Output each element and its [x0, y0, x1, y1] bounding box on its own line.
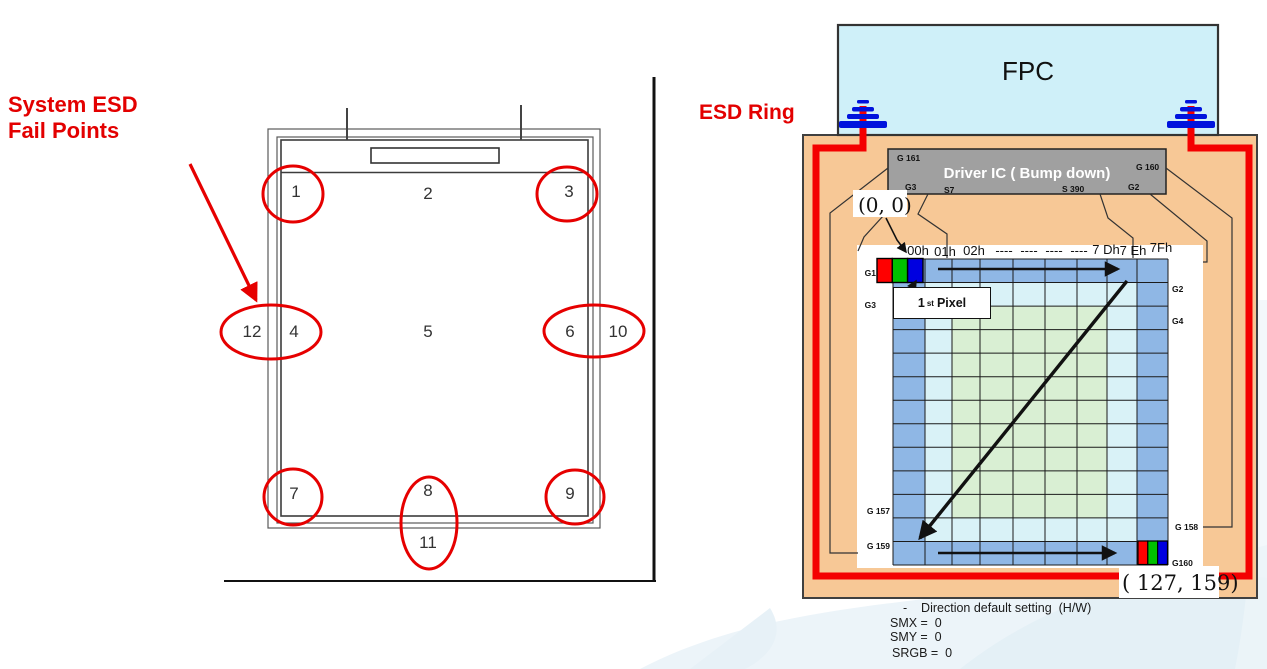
pixel-cell	[1077, 471, 1107, 495]
esd-ring-label: ESD Ring	[699, 101, 795, 125]
pixel-cell	[1045, 518, 1077, 542]
pixel-cell	[925, 471, 952, 495]
first-pixel-word: Pixel	[937, 296, 966, 310]
pixel-cell	[1013, 330, 1045, 354]
col-header-00h: 00h	[907, 243, 929, 258]
pixel-cell	[1045, 494, 1077, 518]
pixel-cell	[1107, 447, 1137, 471]
col-header-01h: 01h	[934, 244, 956, 259]
pixel-cell	[893, 424, 925, 448]
col-header-dash3: ----	[1045, 243, 1062, 258]
pixel-cell	[980, 518, 1013, 542]
pixel-cell	[1077, 353, 1107, 377]
pixel-cell	[1013, 494, 1045, 518]
row-label-g157: G 157	[867, 506, 890, 516]
pixel-cell	[925, 400, 952, 424]
pixel-cell	[1013, 447, 1045, 471]
pixel-cell	[1013, 283, 1045, 307]
first-pixel-number: 1	[918, 296, 925, 310]
pixel-cell	[1077, 377, 1107, 401]
fail-point-6: 6	[565, 322, 574, 341]
pixel-cell	[980, 400, 1013, 424]
pixel-cell	[952, 330, 980, 354]
pixel-cell	[1137, 283, 1168, 307]
pixel-cell	[980, 330, 1013, 354]
first-pixel-rgb	[877, 259, 923, 283]
pixel-cell	[1137, 259, 1168, 283]
pixel-cell	[1107, 400, 1137, 424]
pixel-cell	[952, 353, 980, 377]
first-pixel-red-subcell	[877, 259, 892, 283]
col-header-dash2: ----	[1020, 243, 1037, 258]
pixel-cell	[1045, 471, 1077, 495]
fail-point-10: 10	[609, 322, 628, 341]
pixel-cell	[1137, 494, 1168, 518]
pin-g2: G2	[1128, 182, 1140, 192]
pixel-cell	[1137, 306, 1168, 330]
pixel-cell	[1107, 306, 1137, 330]
row-label-g1: G1	[865, 268, 877, 278]
pixel-cell	[925, 518, 952, 542]
fail-point-1: 1	[291, 182, 300, 201]
right-figure: FPC Driver IC ( Bump down) G 161 G 160 G…	[803, 25, 1257, 598]
pixel-cell	[1077, 259, 1107, 283]
diagram-canvas: 1 2 3 12 4 5 6 10 7 8 9 11	[0, 0, 1267, 669]
pixel-cell	[1107, 377, 1137, 401]
pixel-cell	[893, 494, 925, 518]
first-pixel-blue-subcell	[908, 259, 923, 283]
pixel-cell	[1077, 400, 1107, 424]
fail-point-2: 2	[423, 184, 432, 203]
pixel-cell	[1107, 471, 1137, 495]
pixel-cell	[925, 377, 952, 401]
pixel-cell	[1013, 518, 1045, 542]
pixel-cell	[1077, 283, 1107, 307]
pixel-cell	[893, 353, 925, 377]
pixel-cell	[1107, 424, 1137, 448]
pixel-cell	[1137, 447, 1168, 471]
pixel-cell	[1013, 353, 1045, 377]
pixel-cell	[925, 353, 952, 377]
col-header-dash4: ----	[1070, 243, 1087, 258]
first-pixel-green-subcell	[892, 259, 907, 283]
pixel-cell	[1013, 471, 1045, 495]
pixel-cell	[1013, 259, 1045, 283]
pixel-cell	[893, 400, 925, 424]
note-direction-default: - Direction default setting (H/W)	[903, 601, 1091, 615]
pixel-cell	[1107, 259, 1137, 283]
pixel-cell	[1045, 400, 1077, 424]
pixel-cell	[1077, 494, 1107, 518]
row-label-g158: G 158	[1175, 522, 1198, 532]
pixel-cell	[1045, 306, 1077, 330]
pixel-cell	[980, 471, 1013, 495]
slide: 1 2 3 12 4 5 6 10 7 8 9 11	[0, 0, 1267, 669]
left-figure: 1 2 3 12 4 5 6 10 7 8 9 11	[190, 77, 656, 582]
fail-point-4: 4	[289, 322, 298, 341]
last-pixel-green-subcell	[1148, 541, 1158, 565]
pixel-cell	[1137, 330, 1168, 354]
panel-outline-outer	[268, 129, 600, 528]
pixel-cell	[952, 424, 980, 448]
col-header-7eh: 7 Eh	[1120, 243, 1147, 258]
fail-point-circles	[221, 166, 644, 569]
pixel-cell	[1045, 424, 1077, 448]
pixel-cell	[1137, 400, 1168, 424]
row-label-g2: G2	[1172, 284, 1184, 294]
pixel-cell	[1137, 377, 1168, 401]
pixel-cell	[980, 377, 1013, 401]
pixel-cell	[925, 447, 952, 471]
pixel-cell	[925, 330, 952, 354]
pixel-cell	[1107, 518, 1137, 542]
note-smx: SMX = 0	[890, 616, 942, 630]
connector-bar	[371, 148, 499, 163]
pixel-cell	[980, 353, 1013, 377]
pixel-cell	[893, 447, 925, 471]
pixel-cell	[1077, 447, 1107, 471]
pixel-cell	[1013, 306, 1045, 330]
system-esd-title-line1: System ESD	[8, 92, 138, 118]
col-header-02h: 02h	[963, 243, 985, 258]
fail-point-11: 11	[419, 533, 437, 552]
system-esd-title: System ESD Fail Points	[8, 92, 138, 144]
last-pixel-rgb	[1138, 541, 1168, 565]
fail-point-12: 12	[243, 322, 262, 341]
pixel-cell	[925, 424, 952, 448]
pixel-cell	[1137, 424, 1168, 448]
pixel-cell	[1045, 377, 1077, 401]
driver-ic-label: Driver IC ( Bump down)	[944, 165, 1111, 182]
pixel-cell	[1077, 518, 1107, 542]
fail-point-3: 3	[564, 182, 573, 201]
pin-g160: G 160	[1136, 162, 1159, 172]
note-smy: SMY = 0	[890, 630, 942, 644]
fpc-label: FPC	[1002, 56, 1054, 86]
pixel-cell	[1045, 447, 1077, 471]
pixel-cell	[952, 494, 980, 518]
pixel-cell	[893, 471, 925, 495]
circle-point-6-10	[544, 305, 644, 357]
pixel-cell	[1045, 283, 1077, 307]
pixel-cell	[1137, 518, 1168, 542]
end-coordinate-label: ( 127, 159)	[1122, 571, 1239, 595]
fail-point-5: 5	[423, 322, 432, 341]
first-pixel-callout: 1st Pixel	[893, 287, 991, 319]
last-pixel-blue-subcell	[1158, 541, 1168, 565]
pixel-cell	[1013, 424, 1045, 448]
note-srgb: SRGB = 0	[892, 646, 952, 660]
fail-point-8: 8	[423, 481, 432, 500]
fail-point-9: 9	[565, 484, 574, 503]
pin-g161: G 161	[897, 153, 920, 163]
row-label-g3: G3	[865, 300, 877, 310]
col-header-7dh: 7 Dh	[1092, 242, 1119, 257]
row-label-g4: G4	[1172, 316, 1184, 326]
pixel-cell	[952, 400, 980, 424]
pixel-cell	[980, 259, 1013, 283]
origin-coordinate-label: (0, 0)	[858, 193, 912, 217]
pixel-cell	[1077, 330, 1107, 354]
pixel-cell	[1045, 259, 1077, 283]
pixel-cell	[952, 259, 980, 283]
pixel-cell	[952, 377, 980, 401]
pixel-cell	[893, 330, 925, 354]
pixel-cell	[1107, 494, 1137, 518]
last-pixel-red-subcell	[1138, 541, 1148, 565]
circle-point-12-4	[221, 305, 321, 359]
row-label-g159: G 159	[867, 541, 890, 551]
col-header-dash1: ----	[995, 243, 1012, 258]
pixel-cell	[1107, 353, 1137, 377]
fail-point-7: 7	[289, 484, 298, 503]
panel-outline-inner	[281, 140, 588, 516]
pixel-cell	[1077, 424, 1107, 448]
row-label-g160: G160	[1172, 558, 1193, 568]
pixel-cell	[1137, 353, 1168, 377]
col-header-7fh: 7Fh	[1150, 240, 1172, 255]
pin-s7: S7	[944, 185, 955, 195]
system-esd-title-line2: Fail Points	[8, 118, 138, 144]
pin-s390: S 390	[1062, 184, 1084, 194]
fail-points-arrow	[190, 164, 256, 300]
first-pixel-ordinal: st	[927, 299, 934, 308]
fail-point-numbers: 1 2 3 12 4 5 6 10 7 8 9 11	[243, 182, 628, 552]
pixel-cell	[925, 259, 952, 283]
pixel-cell	[893, 541, 925, 565]
pixel-cell	[1137, 471, 1168, 495]
pixel-cell	[893, 377, 925, 401]
pixel-cell	[1107, 330, 1137, 354]
pixel-cell	[980, 494, 1013, 518]
pixel-cell	[952, 518, 980, 542]
